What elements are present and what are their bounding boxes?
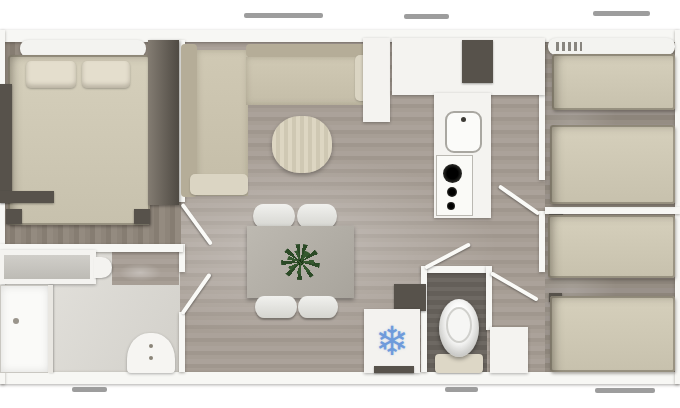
wall-between-right-bedrooms [545, 207, 680, 214]
hall-storage-cabinet [490, 327, 528, 373]
window-bottom-2 [445, 387, 478, 392]
pouf-side-table [272, 116, 332, 173]
dining-chair-top-left [253, 204, 295, 228]
window-bottom-1 [72, 387, 107, 392]
master-bench [0, 191, 54, 203]
shower-tray [0, 285, 50, 373]
hob-burner-small [447, 202, 455, 210]
bathroom-vanity-top [4, 255, 90, 279]
window-top-1 [244, 13, 323, 18]
shower-screen [48, 285, 53, 373]
shower-drain [13, 318, 19, 324]
sofa-top-backrest [246, 44, 368, 57]
dining-chair-top-right [297, 204, 337, 228]
master-bed-post-left [6, 209, 22, 224]
bed-single-top-2 [550, 125, 675, 204]
hob-burner-medium [447, 187, 457, 197]
master-pillow-left [26, 61, 76, 88]
sofa-top-seat [246, 57, 368, 105]
dining-chair-bottom-left [255, 296, 297, 318]
snowflake-icon: ❄ [375, 321, 409, 361]
wall-wc-left [421, 266, 427, 372]
master-side-unit [0, 84, 12, 202]
kitchen-sink [445, 111, 482, 153]
bed-single-bottom-1 [548, 215, 675, 278]
wall-bottom-exterior [0, 372, 680, 384]
entrance-door-arch [127, 333, 175, 373]
master-pillow-right [82, 61, 130, 88]
sofa-left-armrest [190, 174, 248, 195]
wall-master-hall-lower [179, 312, 185, 372]
wc-side-cabinet [394, 284, 426, 311]
hob-burner-large [443, 164, 462, 183]
master-bed-post-right [134, 209, 150, 224]
toilet [439, 299, 479, 357]
right-bedroom-shelf-marks [556, 42, 582, 51]
window-bottom-3 [595, 388, 655, 393]
bed-single-bottom-2 [550, 296, 675, 372]
floor-bathroom-door-patch [112, 252, 179, 285]
window-top-3 [593, 11, 650, 16]
master-wardrobe [148, 40, 179, 205]
dining-chair-bottom-right [298, 296, 338, 318]
fridge-base-strip [374, 366, 414, 373]
fridge: ❄ [364, 309, 420, 373]
pantry-cabinet [363, 38, 390, 122]
plant-centerpiece [283, 246, 318, 278]
bed-single-top-1 [552, 54, 675, 110]
wall-hall-bedroom-mid [539, 211, 545, 272]
wall-wc-top [421, 266, 491, 273]
kitchen-appliance [462, 40, 493, 83]
floorplan-canvas: ❄ [0, 0, 680, 408]
window-top-2 [404, 14, 449, 19]
